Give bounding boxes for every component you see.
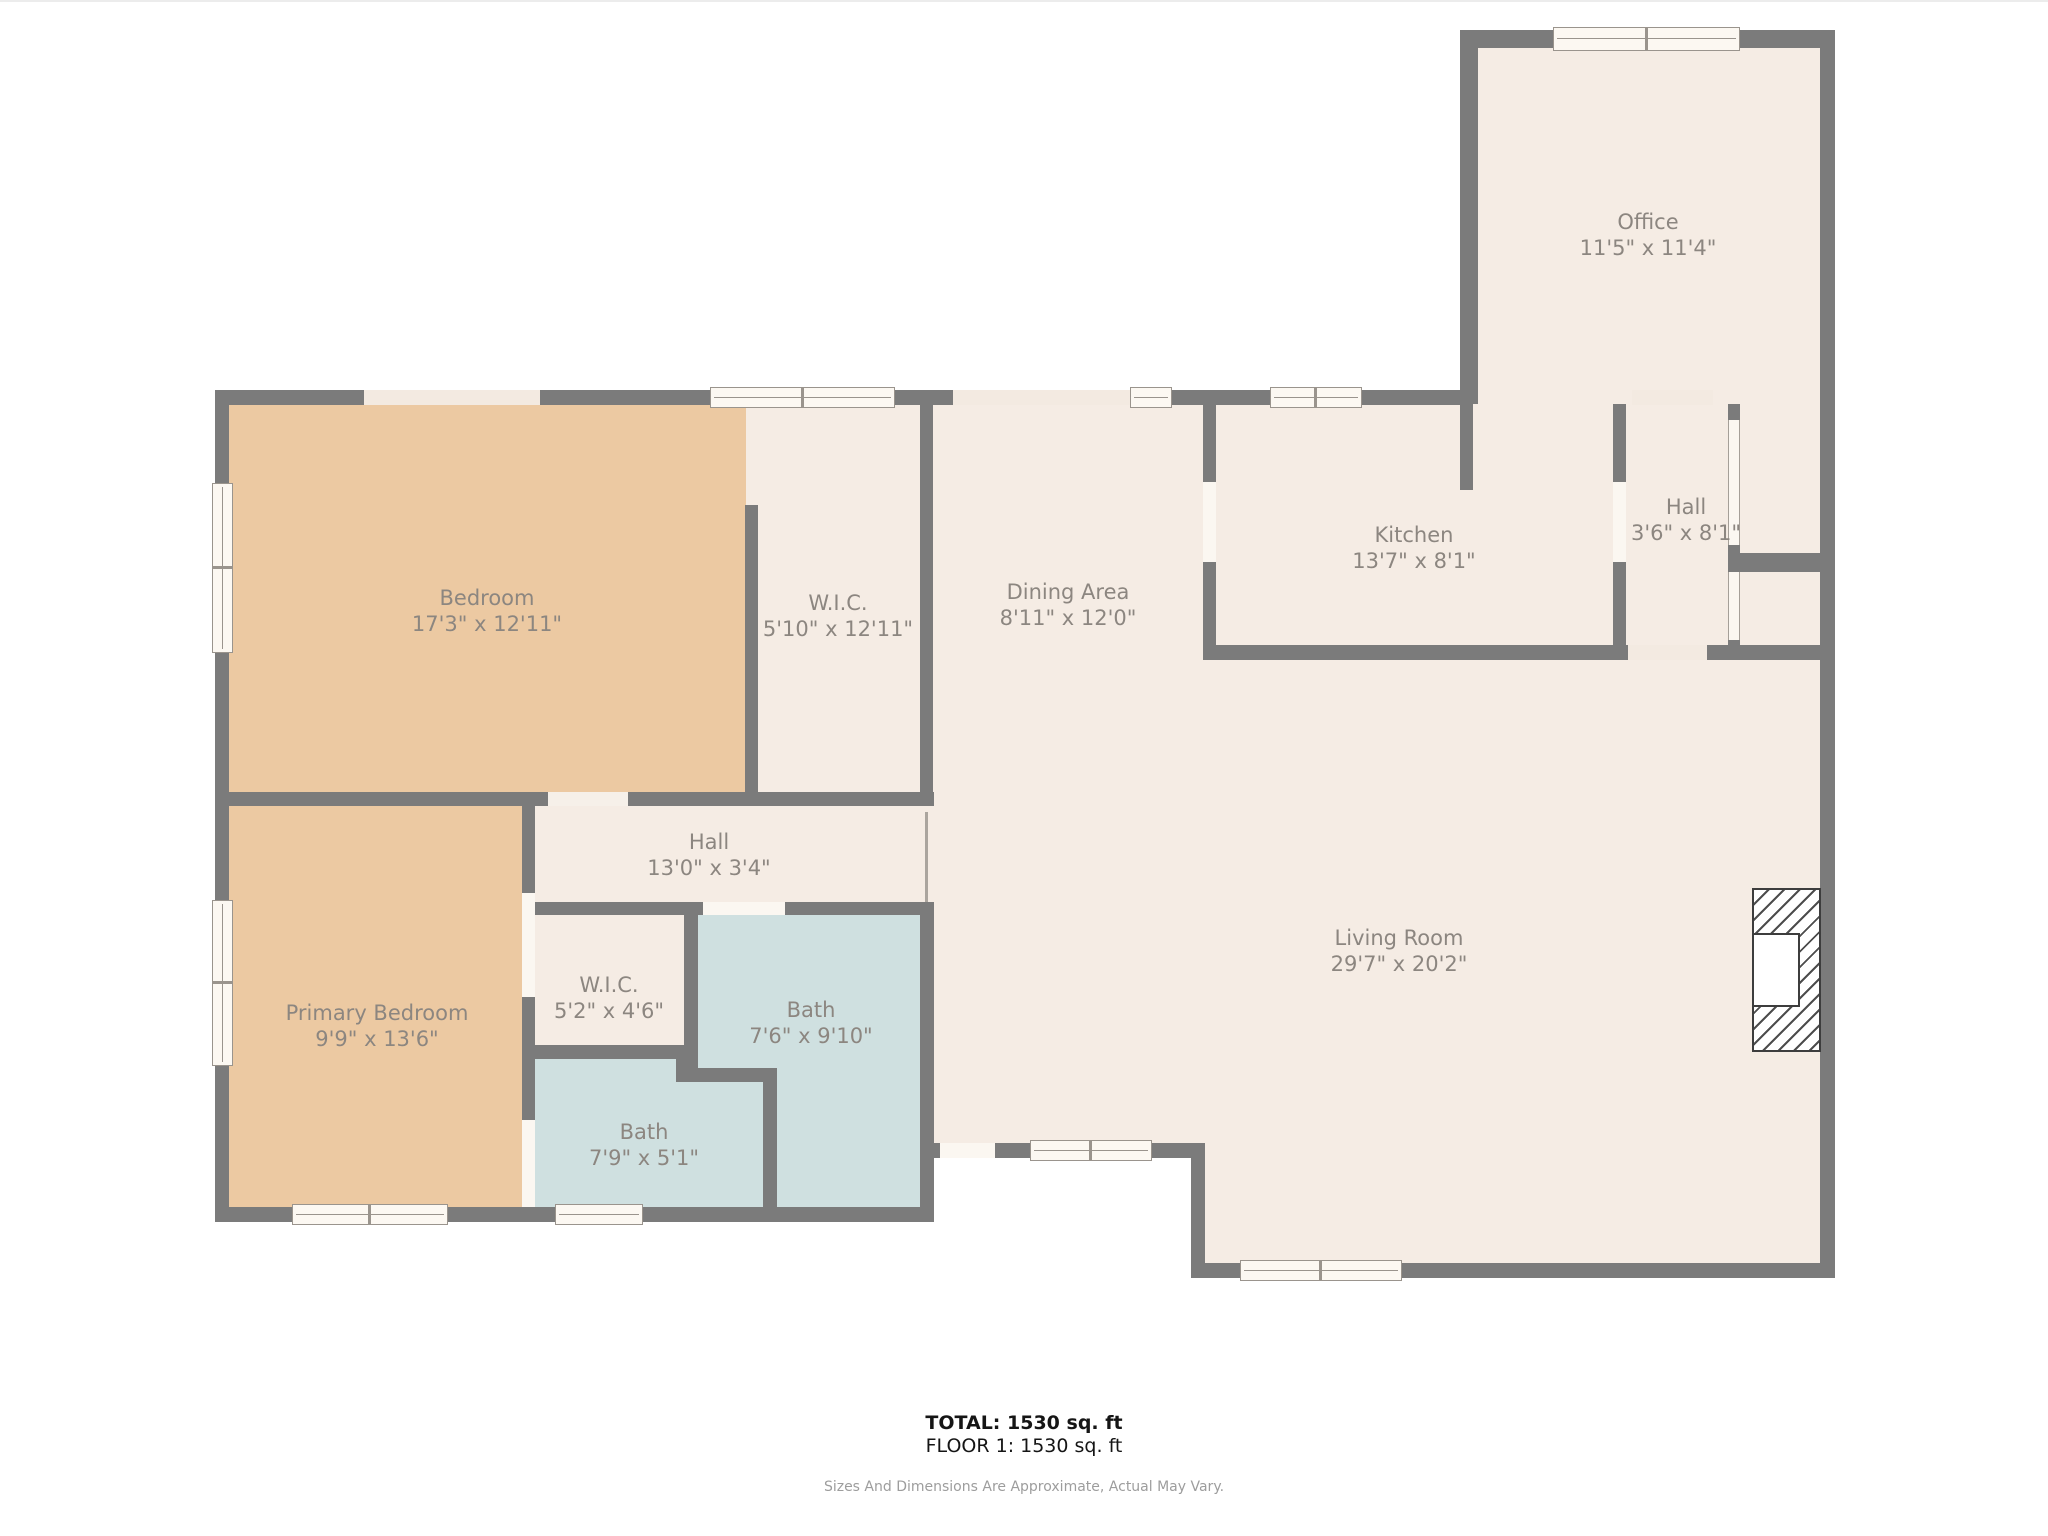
wall-hall-right-stub-top [1728, 404, 1740, 420]
room-label-wic-2: W.I.C. 5'2" x 4'6" [554, 972, 664, 1024]
window-living-bottom-left [1030, 1140, 1152, 1161]
room-dims: 29'7" x 20'2" [1331, 951, 1468, 977]
room-dims: 5'2" x 4'6" [554, 998, 664, 1024]
room-dims: 13'0" x 3'4" [647, 855, 770, 881]
room-floor-living-lower [1198, 1150, 1826, 1271]
door-opening-kitchen-east [1613, 482, 1626, 562]
wall-bath-divider [763, 1068, 777, 1222]
room-name: Hall [647, 829, 770, 855]
opening-hall-to-living [1628, 645, 1707, 660]
room-name: Primary Bedroom [286, 1000, 469, 1026]
room-name: Dining Area [1000, 579, 1137, 605]
room-name: W.I.C. [554, 972, 664, 998]
room-label-bedroom: Bedroom 17'3" x 12'11" [412, 585, 562, 637]
door-opening-bedroom [548, 792, 628, 806]
floor-area-text: FLOOR 1: 1530 sq. ft [926, 1435, 1123, 1457]
room-name: Hall [1631, 494, 1741, 520]
room-dims: 17'3" x 12'11" [412, 611, 562, 637]
room-dims: 9'9" x 13'6" [286, 1026, 469, 1052]
door-opening-office [1632, 390, 1713, 405]
window-top-kitchen-small [1130, 387, 1172, 408]
window-top-wic [710, 387, 895, 408]
room-dims: 11'5" x 11'4" [1580, 235, 1717, 261]
fireplace-hearth [1752, 933, 1800, 1007]
room-label-bath-1: Bath 7'6" x 9'10" [749, 997, 872, 1049]
wall-hall-right-stub-low [1728, 640, 1740, 660]
wall-bedroom-wic [745, 505, 758, 792]
room-dims: 13'7" x 8'1" [1352, 548, 1475, 574]
window-primary-left [212, 900, 233, 1066]
door-opening-primary-wic [522, 893, 535, 997]
wall-bath1-right [920, 912, 934, 1222]
room-dims: 5'10" x 12'11" [763, 616, 913, 642]
room-name: Office [1580, 209, 1717, 235]
room-name: Bath [589, 1119, 699, 1145]
door-leaf-hall-living [925, 812, 928, 902]
wall-closet-bottom [1728, 553, 1835, 572]
door-opening-living-rear [940, 1143, 995, 1158]
door-opening-bath-1 [703, 902, 785, 915]
wall-wic2-bottom [522, 1045, 690, 1059]
room-dims: 7'6" x 9'10" [749, 1023, 872, 1049]
window-office-top [1553, 27, 1740, 51]
wall-office-left [1460, 30, 1478, 404]
room-label-wic-1: W.I.C. 5'10" x 12'11" [763, 590, 913, 642]
window-living-bottom-right [1240, 1260, 1402, 1281]
wall-kitchen-bottom [1203, 645, 1628, 660]
room-label-bath-2: Bath 7'9" x 5'1" [589, 1119, 699, 1171]
disclaimer-text: Sizes And Dimensions Are Approximate, Ac… [824, 1479, 1224, 1495]
room-label-kitchen: Kitchen 13'7" x 8'1" [1352, 522, 1475, 574]
wall-living-step [1191, 1143, 1205, 1278]
door-opening-bath-2 [522, 1120, 535, 1207]
room-label-hall-upper: Hall 3'6" x 8'1" [1631, 494, 1741, 546]
wall-kitchen-stub [1460, 404, 1473, 490]
door-opening-hall-closet-low [1728, 572, 1740, 640]
room-name: Kitchen [1352, 522, 1475, 548]
window-bedroom-left [212, 483, 233, 653]
room-dims: 8'11" x 12'0" [1000, 605, 1137, 631]
room-dims: 7'9" x 5'1" [589, 1145, 699, 1171]
fireplace [1752, 888, 1821, 1052]
room-label-office: Office 11'5" x 11'4" [1580, 209, 1717, 261]
window-bath2-bottom [555, 1204, 643, 1225]
room-label-dining-area: Dining Area 8'11" x 12'0" [1000, 579, 1137, 631]
page-top-border [0, 0, 2048, 2]
opening-top-wall-dining [953, 390, 1132, 405]
room-name: W.I.C. [763, 590, 913, 616]
total-area-text: TOTAL: 1530 sq. ft [925, 1412, 1122, 1434]
door-opening-kitchen-west [1203, 482, 1216, 562]
opening-top-wall-left [364, 390, 540, 405]
room-name: Bath [749, 997, 872, 1023]
room-floor-living [926, 650, 1826, 1150]
room-label-hall-lower: Hall 13'0" x 3'4" [647, 829, 770, 881]
room-label-living-room: Living Room 29'7" x 20'2" [1331, 925, 1468, 977]
wall-bath-jog [676, 1068, 777, 1082]
window-primary-bottom [292, 1204, 448, 1225]
floor-plan: Bedroom 17'3" x 12'11" W.I.C. 5'10" x 12… [0, 0, 2048, 1536]
wall-kitchen-bottom-right [1707, 645, 1835, 660]
room-dims: 3'6" x 8'1" [1631, 520, 1741, 546]
wall-wic-dining [920, 404, 933, 806]
window-top-kitchen [1270, 387, 1362, 408]
room-name: Living Room [1331, 925, 1468, 951]
room-label-primary-bedroom: Primary Bedroom 9'9" x 13'6" [286, 1000, 469, 1052]
room-name: Bedroom [412, 585, 562, 611]
